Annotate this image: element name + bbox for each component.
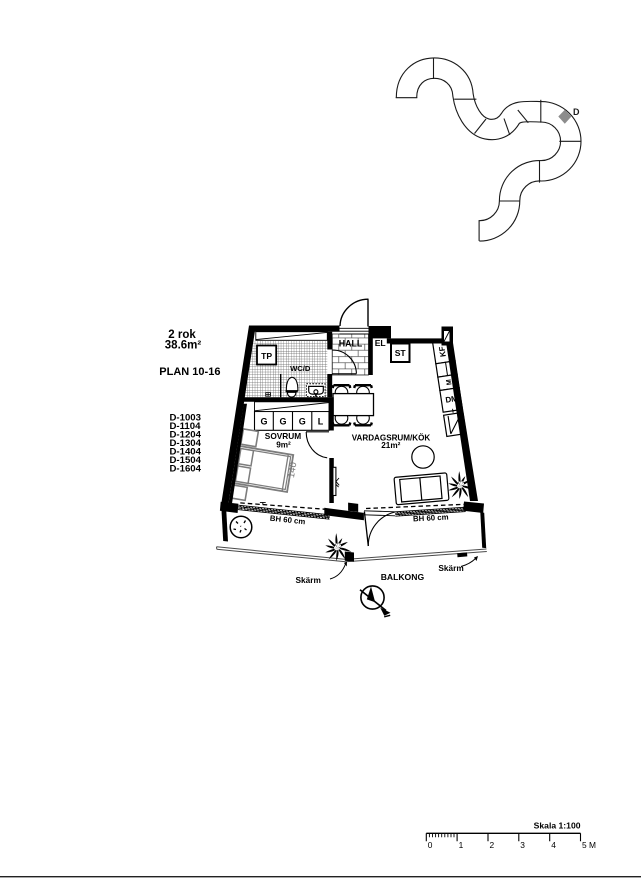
svg-text:G: G [279,416,286,426]
svg-text:5 M: 5 M [582,840,596,850]
svg-text:Skala 1:100: Skala 1:100 [534,821,581,831]
svg-text:KF: KF [437,346,448,358]
svg-text:ST: ST [395,348,407,358]
svg-text:TP: TP [261,351,272,361]
svg-text:HALL: HALL [339,338,363,348]
svg-text:Skärm: Skärm [296,575,321,585]
svg-text:2: 2 [490,840,495,850]
svg-text:9m²: 9m² [276,440,291,449]
svg-text:WC/D: WC/D [290,364,311,373]
svg-text:BH 60 cm: BH 60 cm [413,513,449,524]
svg-text:G: G [299,416,306,426]
svg-text:D: D [573,107,580,117]
svg-text:D-1604: D-1604 [170,464,202,475]
svg-text:21m²: 21m² [381,441,400,450]
svg-text:1: 1 [459,840,464,850]
svg-text:G: G [260,416,267,426]
svg-text:38.6m²: 38.6m² [165,340,202,352]
svg-text:BALKONG: BALKONG [381,572,425,582]
svg-text:140: 140 [286,461,299,478]
svg-text:BH 60 cm: BH 60 cm [269,514,305,527]
svg-text:0: 0 [428,840,433,850]
svg-text:Skärm: Skärm [438,563,463,573]
svg-text:PLAN 10-16: PLAN 10-16 [159,366,220,378]
svg-text:4: 4 [551,840,556,850]
svg-text:L: L [318,416,324,426]
svg-text:EL: EL [375,338,386,348]
svg-text:3: 3 [520,840,525,850]
